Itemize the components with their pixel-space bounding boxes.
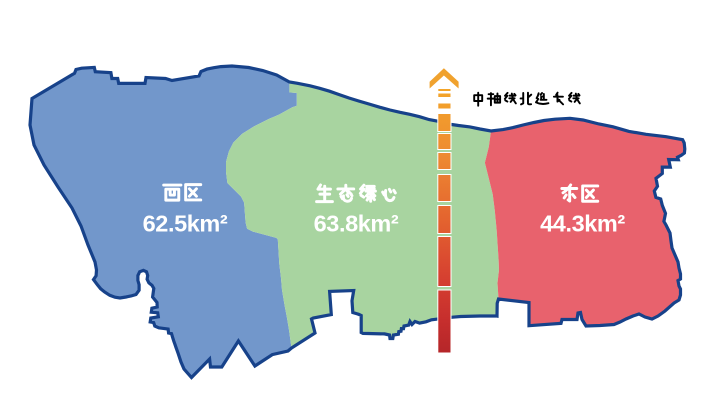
svg-text:44.3km²: 44.3km²: [540, 211, 625, 237]
svg-text:62.5km²: 62.5km²: [143, 211, 228, 237]
svg-text:63.8km²: 63.8km²: [314, 211, 399, 237]
